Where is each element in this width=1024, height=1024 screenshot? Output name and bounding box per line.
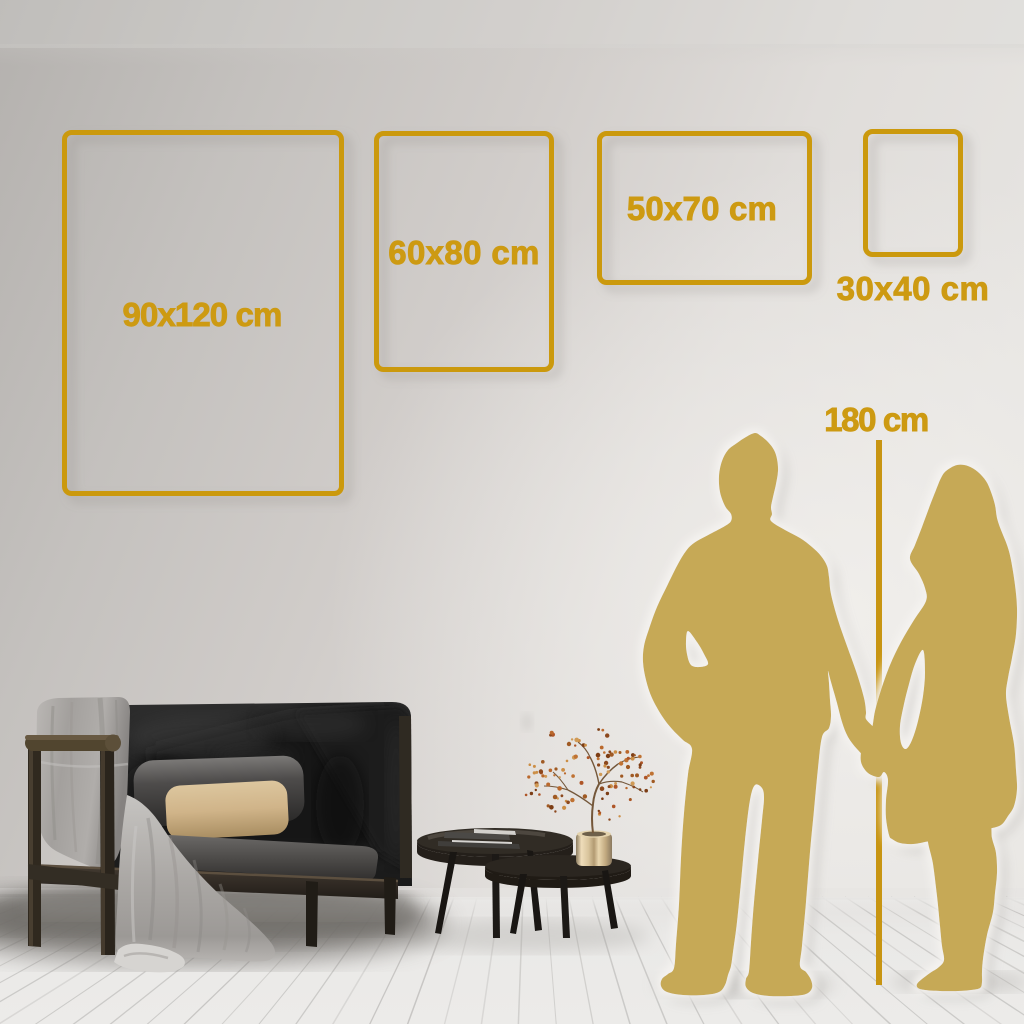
svg-text:180 cm: 180 cm [824, 401, 928, 438]
svg-text:30x40 cm: 30x40 cm [837, 270, 990, 307]
svg-text:60x80 cm: 60x80 cm [388, 234, 539, 271]
svg-text:50x70 cm: 50x70 cm [627, 190, 777, 227]
svg-text:90x120 cm: 90x120 cm [123, 296, 282, 333]
